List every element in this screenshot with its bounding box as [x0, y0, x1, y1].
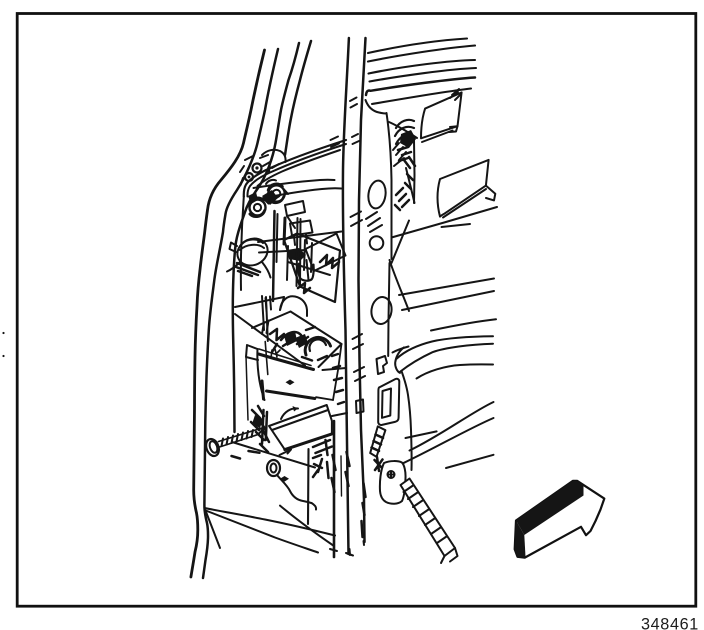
svg-text:348461: 348461 [641, 616, 699, 630]
